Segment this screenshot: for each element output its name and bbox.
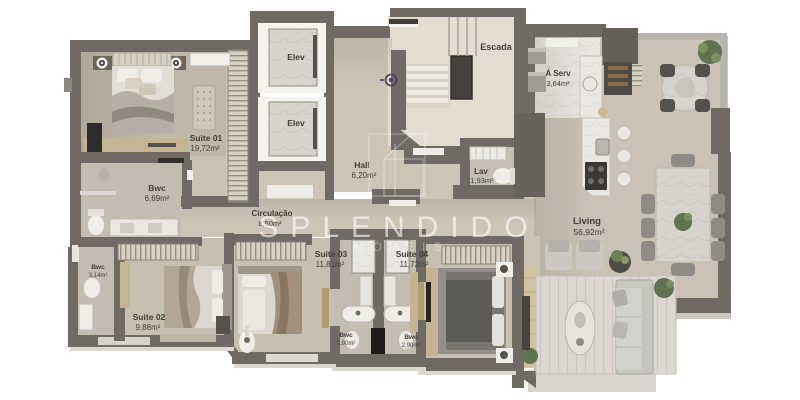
svg-text:Bwc: Bwc [148,183,166,193]
svg-text:6,69m²: 6,69m² [145,194,170,203]
svg-text:Elev: Elev [287,52,305,62]
svg-text:Hall: Hall [354,160,370,170]
svg-text:11,72m²: 11,72m² [400,260,429,269]
svg-text:Suite 01: Suite 01 [190,133,223,143]
svg-text:11,81m²: 11,81m² [316,260,345,269]
svg-text:Lav: Lav [474,167,488,176]
svg-text:Living: Living [573,216,601,227]
svg-text:Bwc: Bwc [339,332,353,339]
svg-text:Bwc: Bwc [91,264,105,271]
svg-text:Á Serv: Á Serv [545,69,571,78]
svg-text:Escada: Escada [480,42,513,52]
svg-text:2,90m²: 2,90m² [337,341,356,347]
svg-text:2,90m²: 2,90m² [402,343,421,349]
svg-text:56,92m²: 56,92m² [573,227,604,237]
svg-text:3,64m²: 3,64m² [546,79,570,88]
svg-text:Bwc: Bwc [404,334,418,341]
svg-text:3,14m²: 3,14m² [89,273,108,279]
svg-text:9,88m²: 9,88m² [136,323,161,332]
svg-text:6,20m²: 6,20m² [352,171,377,180]
svg-text:Suite 03: Suite 03 [315,249,348,259]
svg-text:MÓVEIS: MÓVEIS [355,239,450,254]
svg-text:Elev: Elev [287,118,305,128]
svg-text:Suite 02: Suite 02 [133,312,166,322]
svg-text:19,72m²: 19,72m² [190,144,220,153]
svg-text:1,93m²: 1,93m² [470,176,494,185]
